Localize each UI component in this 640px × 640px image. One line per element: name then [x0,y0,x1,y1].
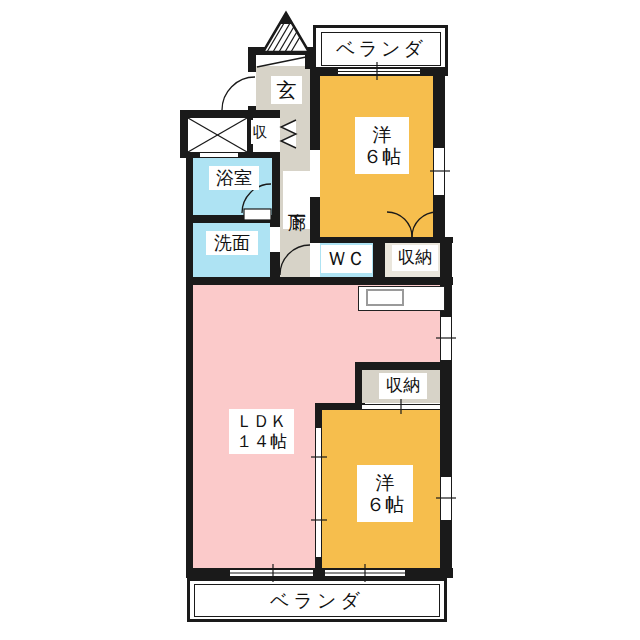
window [325,569,405,577]
bathroom-label: 浴室 [209,166,259,190]
western-room-top-size: ６帖 [363,146,401,168]
wall [180,110,280,118]
western-room-top-label: 洋 ６帖 [355,117,409,174]
ldk-room-mid [315,362,355,403]
door-gap-western-top [310,150,320,197]
ldk-size: １４帖 [236,432,287,452]
shoe-closet-label: 収 [251,120,269,144]
triangle-tip [279,12,293,24]
door-gap-washroom [270,227,280,252]
closet-top-label: 収納 [392,245,438,271]
ldk-label: ＬＤＫ １４帖 [229,409,294,454]
wall [186,277,315,285]
washroom-label: 洗面 [206,231,258,255]
door-gap-entrance [248,72,256,106]
window [440,477,452,520]
window [338,68,420,75]
closet-bottom-label: 収納 [379,373,427,399]
window [230,569,313,577]
wall [310,277,453,285]
western-room-bottom-name: 洋 [376,472,395,494]
balcony-bottom-label: ベランダ [194,584,440,617]
entrance-label: 玄 [271,76,302,104]
wall [186,568,453,578]
wall [355,362,452,370]
wall [315,403,322,428]
window [200,152,238,158]
balcony-top-label: ベランダ [321,32,441,66]
wc-label: ＷＣ [321,245,372,273]
window [440,317,452,360]
wall [373,243,385,277]
floor-plan: ベランダ 玄 収 浴室 洗面 廊下 洋 ６帖 ＷＣ 収納 ＬＤＫ １４帖 収納 … [0,0,640,640]
wall [315,403,365,410]
shaft-box [188,118,247,152]
wall [180,110,188,158]
window [433,148,445,195]
western-room-top-name: 洋 [373,124,392,146]
hallway-label: 廊下 [283,171,310,229]
wall [186,215,272,223]
sliding-partition [315,428,322,557]
western-room-bottom-size: ６帖 [366,494,404,516]
western-room-bottom-label: 洋 ６帖 [357,465,413,522]
wall [248,47,313,55]
wall [272,152,280,223]
sliding-door-closet [362,404,440,410]
ldk-name: ＬＤＫ [236,412,287,432]
kitchen-sink [366,289,404,306]
wall [305,47,313,69]
